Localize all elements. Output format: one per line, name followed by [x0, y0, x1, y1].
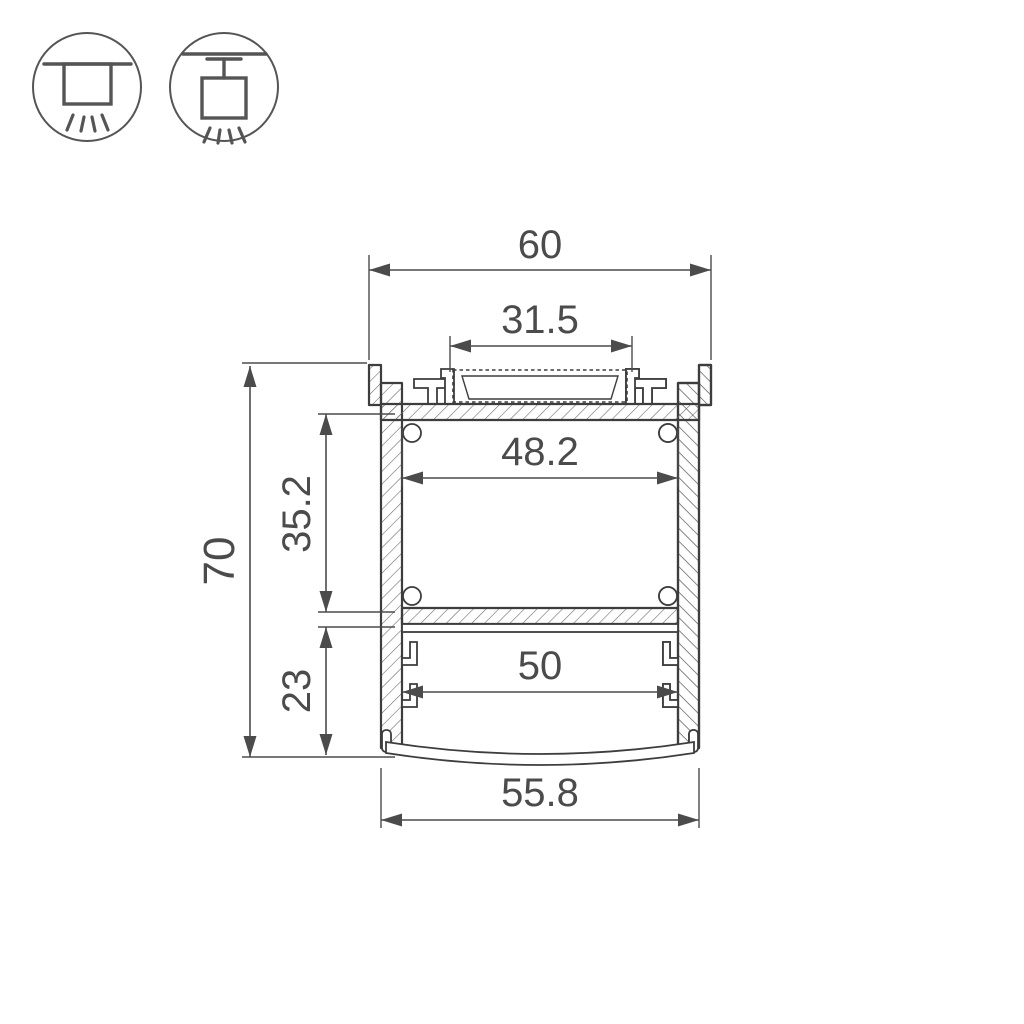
arrow-right — [678, 814, 699, 827]
led-module-recess — [453, 370, 627, 402]
dim-label-inner-width: 48.2 — [501, 430, 579, 474]
arrow-left — [402, 472, 423, 485]
dim-bottom-width: 55.8 — [381, 768, 699, 828]
screw-boss-bottom — [403, 587, 421, 605]
dim-lower-inner-width: 50 — [402, 644, 678, 699]
pendant-mount-luminaire-icon — [170, 33, 278, 143]
arrow-top — [320, 627, 333, 648]
arrow-top — [244, 366, 257, 387]
arrow-right — [690, 264, 711, 277]
led-cover-profile — [462, 376, 618, 399]
dim-label-total-width: 60 — [518, 223, 563, 267]
dim-label-lower-inner-width: 50 — [518, 644, 563, 688]
top-outer-tab — [369, 365, 381, 405]
dim-label-total-height: 70 — [195, 537, 244, 586]
arrow-bottom — [244, 736, 257, 757]
dim-label-bottom-width: 55.8 — [501, 771, 579, 815]
dim-label-led-recess-width: 31.5 — [501, 298, 579, 342]
arrow-right — [657, 472, 678, 485]
icon-circle — [170, 33, 278, 141]
arrow-bottom — [320, 734, 333, 755]
arrow-right — [611, 340, 632, 353]
icon-circle — [33, 33, 141, 141]
surface-mount-luminaire-icon — [33, 33, 141, 141]
luminaire-body — [202, 78, 246, 118]
bottom-diffuser-lens — [386, 742, 694, 765]
accessory-hook-upper — [402, 642, 417, 665]
profile-cross-section — [369, 365, 711, 765]
top-plate — [381, 404, 699, 420]
dim-lower-cavity-height: 23 — [275, 627, 395, 755]
dim-upper-cavity-height: 35.2 — [275, 414, 395, 612]
dim-led-recess-width: 31.5 — [450, 298, 632, 372]
mount-icons — [33, 33, 278, 143]
side-wall — [381, 383, 402, 748]
lower-cover-plate — [402, 624, 678, 632]
dim-label-lower-cavity-height: 23 — [275, 669, 319, 714]
arrow-left — [369, 264, 390, 277]
middle-plate — [402, 608, 678, 624]
arrow-top — [320, 414, 333, 435]
luminaire-body — [64, 64, 111, 104]
dim-label-upper-cavity-height: 35.2 — [275, 475, 319, 553]
arrow-left — [381, 814, 402, 827]
profile-dimension-drawing: 60 31.5 48.2 50 55.8 — [0, 0, 1024, 1024]
light-rays — [67, 115, 108, 131]
arrow-left — [450, 340, 471, 353]
technical-drawing-page: 60 31.5 48.2 50 55.8 — [0, 0, 1024, 1024]
screw-boss-top — [403, 424, 421, 442]
dim-inner-width: 48.2 — [402, 428, 678, 487]
arrow-bottom — [320, 591, 333, 612]
